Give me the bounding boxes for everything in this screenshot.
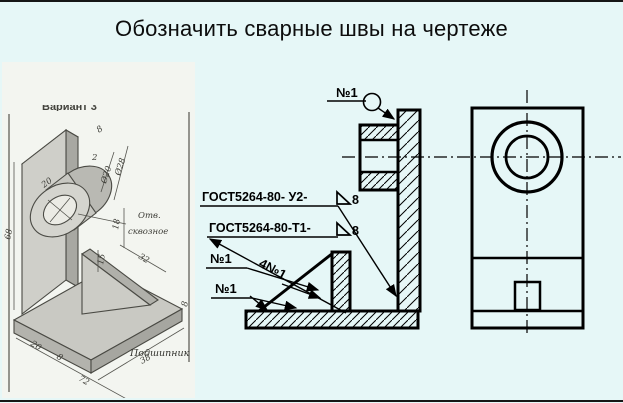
fillet-weld-icon [337,192,350,204]
gost-callout-2-text: ГОСТ5264-80-Т1- [209,221,311,235]
rib-section [332,252,350,311]
section-view: №1 ГОСТ5264-80- У2- 8 ГОСТ5264-80-Т1- 8 [200,85,621,328]
weld-flag-circle [364,94,381,111]
weld-drawing: №1 ГОСТ5264-80- У2- 8 ГОСТ5264-80-Т1- 8 [0,0,623,403]
boss-top-wall [361,126,397,139]
boss-bottom-wall [361,173,397,189]
base-plate-section [246,311,418,328]
rib-weld-arrow-2 [250,296,267,310]
front-view [472,90,583,334]
weld-flag-leader [378,108,394,119]
weld-label-a: №1 [210,251,232,266]
slide: Обозначить сварные швы на чертеже Вариан… [0,0,623,403]
rib-weld-arrow-1 [282,284,320,298]
weld-label-b: №1 [215,281,237,296]
gost-callout-1-size: 8 [352,193,359,207]
rib-weld-count-label: 4№1 [257,255,290,282]
fillet-weld-icon [337,223,350,235]
weld-flag-callout: №1 [327,85,394,119]
gost-callout-2-size: 8 [352,224,359,238]
gost-callout-1-text: ГОСТ5264-80- У2- [202,190,307,204]
vertical-plate-section [398,110,420,311]
weld-flag-label: №1 [336,85,358,100]
